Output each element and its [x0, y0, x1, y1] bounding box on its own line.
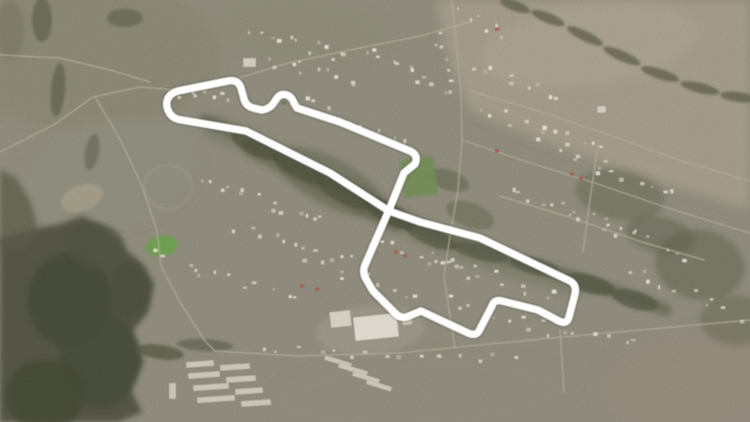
satellite-map-view[interactable] [0, 0, 750, 422]
satellite-map-canvas[interactable] [0, 0, 750, 422]
grain-overlay-light [0, 0, 750, 422]
route-notch-dot [281, 100, 287, 105]
